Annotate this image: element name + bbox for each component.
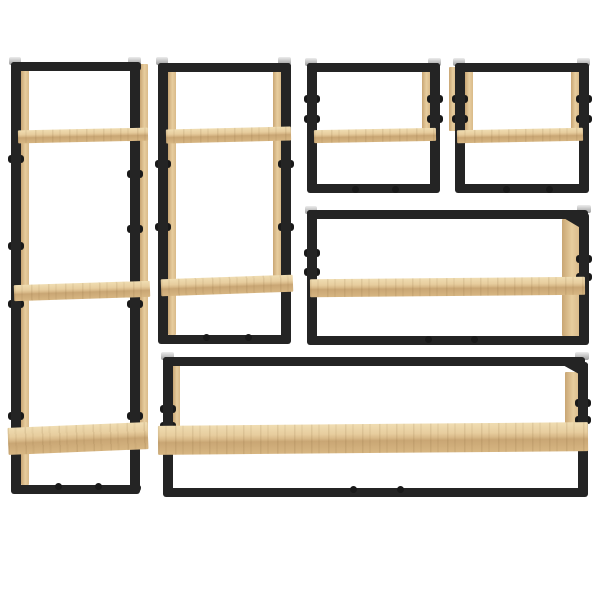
wood-post xyxy=(273,71,281,277)
wood-shelf xyxy=(310,277,585,297)
frame-bottom-bar xyxy=(163,488,588,497)
screw-dot-icon xyxy=(203,334,210,341)
screw-dot-icon xyxy=(397,486,404,493)
shelf-unit-vertical-center-left xyxy=(155,56,294,350)
wood-shelf xyxy=(457,128,583,143)
frame-top-bar xyxy=(307,63,440,72)
frame-top-bar xyxy=(11,62,141,71)
frame-bottom-bar xyxy=(307,184,440,193)
shelf-unit-tall-left xyxy=(8,56,150,500)
shelf-unit-small-top-center xyxy=(303,56,443,200)
frame-right-bar xyxy=(281,63,291,344)
screw-dot-icon xyxy=(546,186,553,193)
screw-dot-icon xyxy=(503,186,510,193)
frame-bottom-bar xyxy=(307,336,588,345)
shelf-unit-long-bottom xyxy=(155,350,595,502)
wood-shelf xyxy=(18,128,148,144)
frame-left-bar xyxy=(455,63,465,193)
wood-shelf xyxy=(7,422,148,455)
wood-post xyxy=(173,365,180,427)
frame-left-bar xyxy=(307,210,317,345)
wood-shelf xyxy=(314,128,436,143)
shelf-unit-wide-middle-right xyxy=(303,203,592,350)
frame-top-bar xyxy=(455,63,589,72)
frame-top-bar xyxy=(163,357,585,366)
frame-bottom-bar xyxy=(11,485,141,494)
frame-bottom-bar xyxy=(455,184,589,193)
frame-top-bar xyxy=(158,63,291,72)
wood-post xyxy=(140,64,148,448)
frame-left-bar xyxy=(307,63,317,193)
frame-bottom-bar xyxy=(158,335,291,344)
screw-dot-icon xyxy=(392,186,399,193)
wood-shelf xyxy=(161,275,294,297)
screw-dot-icon xyxy=(350,486,357,493)
screw-dot-icon xyxy=(352,186,359,193)
wood-shelf xyxy=(158,422,588,455)
screw-dot-icon xyxy=(95,483,102,490)
screw-dot-icon xyxy=(55,483,62,490)
screw-dot-icon xyxy=(245,334,252,341)
frame-left-bar xyxy=(158,63,168,344)
frame-top-bar xyxy=(307,210,588,219)
product-photo-canvas xyxy=(0,0,600,600)
screw-dot-icon xyxy=(425,336,432,343)
shelf-unit-small-top-right xyxy=(448,56,594,200)
screw-dot-icon xyxy=(471,336,478,343)
